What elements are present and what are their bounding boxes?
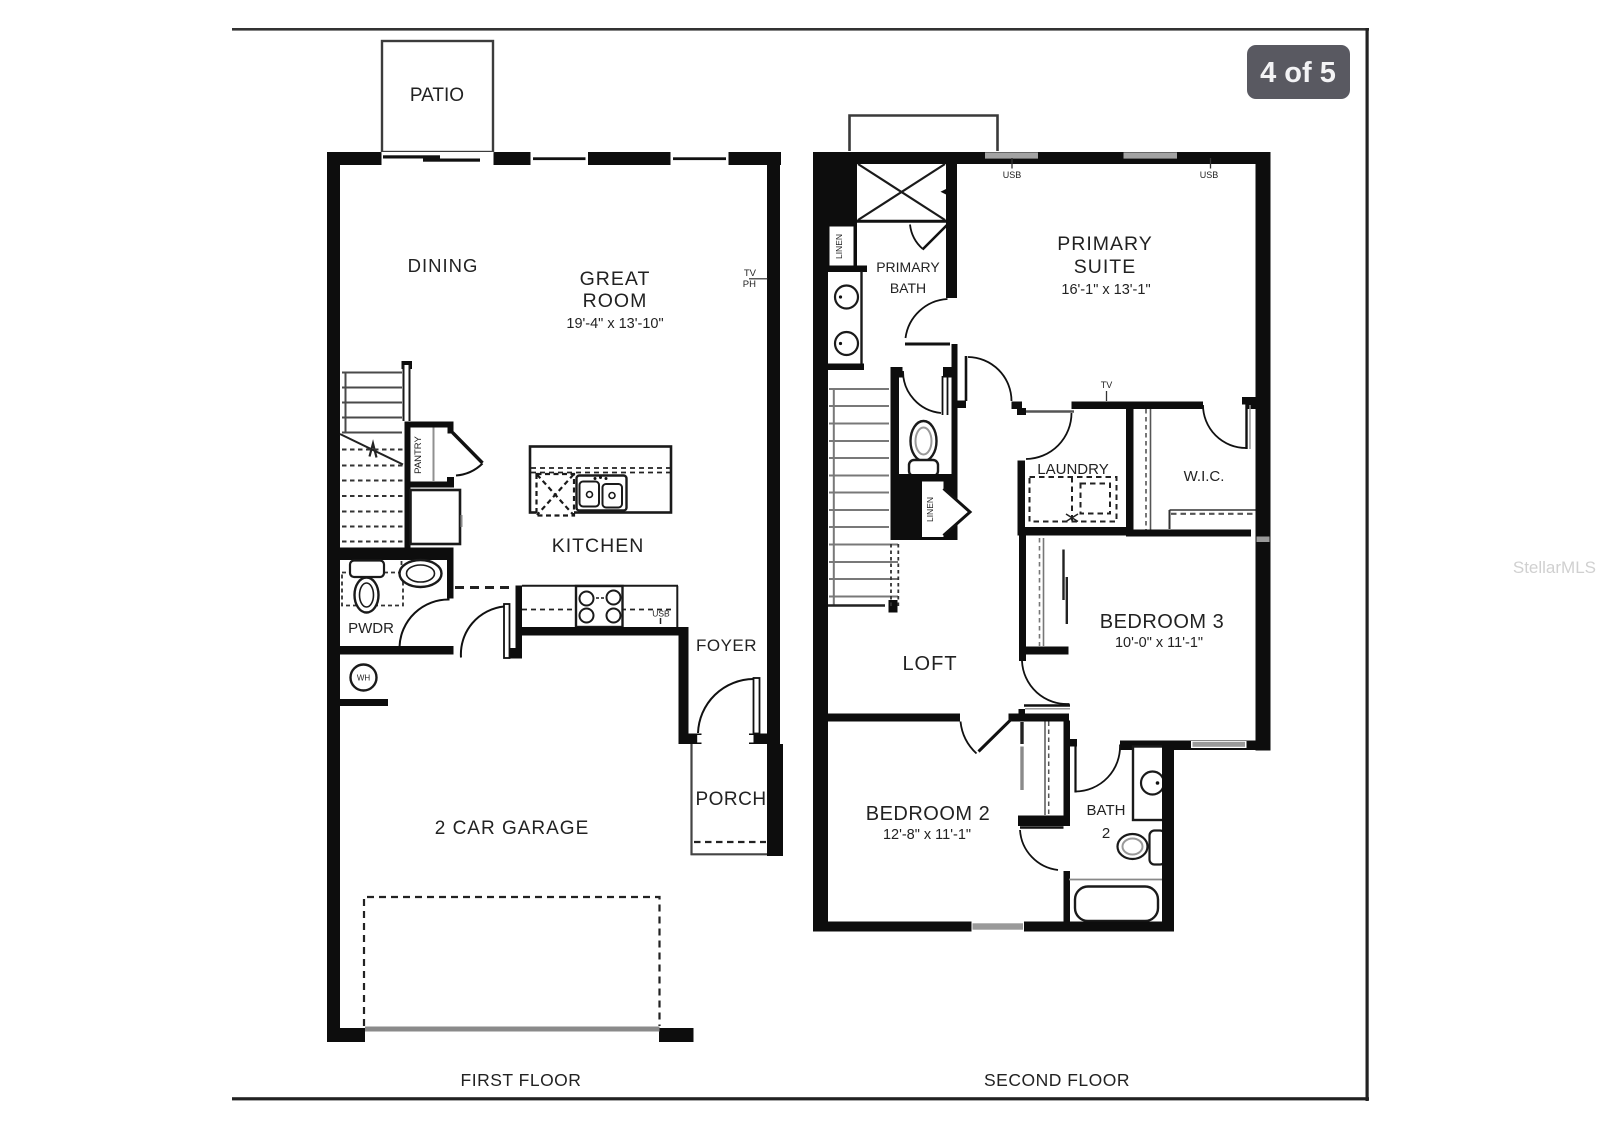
svg-text:USB: USB: [1200, 170, 1219, 180]
svg-text:LAUNDRY: LAUNDRY: [1037, 461, 1108, 478]
svg-text:TV: TV: [1101, 380, 1113, 390]
svg-text:PRIMARY: PRIMARY: [1057, 233, 1153, 255]
svg-text:FOYER: FOYER: [696, 636, 757, 655]
svg-text:GREAT: GREAT: [580, 268, 651, 290]
svg-text:PWDR: PWDR: [348, 620, 394, 637]
svg-text:KITCHEN: KITCHEN: [552, 535, 645, 557]
svg-text:2: 2: [1102, 825, 1110, 842]
svg-text:BATH: BATH: [1087, 802, 1126, 819]
svg-text:PATIO: PATIO: [410, 85, 464, 106]
svg-text:2 CAR GARAGE: 2 CAR GARAGE: [435, 818, 590, 839]
svg-text:LINEN: LINEN: [925, 497, 935, 522]
svg-text:16'-1" x 13'-1": 16'-1" x 13'-1": [1061, 282, 1150, 298]
svg-text:BEDROOM 3: BEDROOM 3: [1100, 611, 1225, 633]
svg-text:PH: PH: [743, 279, 756, 290]
svg-text:DINING: DINING: [408, 255, 479, 276]
svg-text:10'-0" x 11'-1": 10'-0" x 11'-1": [1115, 635, 1203, 651]
svg-text:SUITE: SUITE: [1074, 256, 1136, 278]
svg-text:StellarMLS: StellarMLS: [1513, 558, 1596, 577]
svg-text:4 of 5: 4 of 5: [1260, 57, 1336, 89]
svg-text:LINEN: LINEN: [834, 234, 844, 259]
svg-text:12'-8" x 11'-1": 12'-8" x 11'-1": [883, 827, 971, 843]
svg-text:TV: TV: [744, 268, 757, 279]
svg-text:LOFT: LOFT: [902, 653, 957, 675]
svg-text:BATH: BATH: [890, 280, 926, 296]
svg-text:BEDROOM 2: BEDROOM 2: [866, 803, 991, 825]
svg-text:SECOND FLOOR: SECOND FLOOR: [984, 1070, 1130, 1090]
svg-text:PANTRY: PANTRY: [413, 436, 424, 474]
svg-text:WH: WH: [357, 674, 371, 683]
svg-text:FIRST FLOOR: FIRST FLOOR: [461, 1070, 582, 1090]
svg-text:USB: USB: [1003, 170, 1022, 180]
svg-text:PORCH: PORCH: [695, 789, 766, 810]
svg-text:USB: USB: [652, 609, 670, 619]
svg-text:PRIMARY: PRIMARY: [876, 259, 940, 275]
svg-text:W.I.C.: W.I.C.: [1184, 468, 1225, 485]
svg-text:ROOM: ROOM: [583, 290, 648, 312]
svg-text:19'-4" x 13'-10": 19'-4" x 13'-10": [566, 316, 663, 332]
